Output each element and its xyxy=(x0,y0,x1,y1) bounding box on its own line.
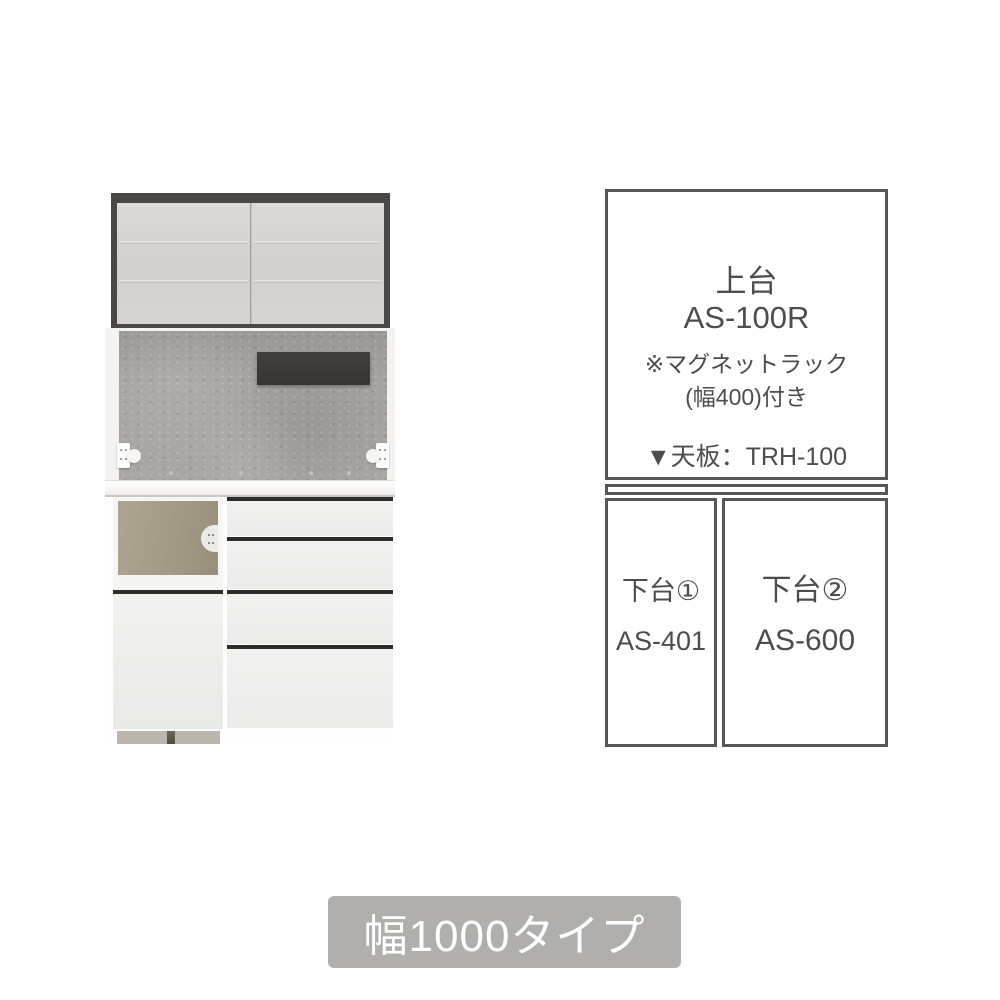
lower-door xyxy=(113,594,223,729)
shelf-line xyxy=(119,280,248,283)
lower-unit-2-model: AS-600 xyxy=(755,623,855,659)
top-board-bar xyxy=(605,484,888,495)
upper-unit-spec-box: 上台 AS-100R ※マグネットラック (幅400)付き ▼天板：TRH-10… xyxy=(605,189,888,480)
lower-unit-2-name: 下台② xyxy=(762,573,849,609)
lower-unit-1-name: 下台① xyxy=(622,573,700,609)
upper-unit-note-line2: (幅400)付き xyxy=(608,381,885,414)
drawer-1 xyxy=(227,501,393,537)
lower-cabinet xyxy=(105,497,395,745)
sliding-door-right xyxy=(251,203,385,324)
kickplate xyxy=(117,731,220,744)
sliding-doors xyxy=(117,203,384,324)
upper-unit-title: 上台 AS-100R xyxy=(608,264,885,336)
upper-unit-model: AS-100R xyxy=(608,300,885,336)
product-photo xyxy=(105,193,395,745)
lower-left-column xyxy=(113,497,223,729)
sliding-door-left xyxy=(117,203,251,324)
appliance-niche xyxy=(113,497,223,590)
drawer-3 xyxy=(227,594,393,645)
screw-dot xyxy=(239,471,243,475)
screw-dot xyxy=(169,471,173,475)
lower-unit-2-spec-box: 下台② AS-600 xyxy=(722,498,888,747)
shelf-line xyxy=(254,241,383,244)
lower-unit-1-model: AS-401 xyxy=(616,623,706,659)
upper-unit-note-line1: ※マグネットラック xyxy=(608,348,885,381)
countertop xyxy=(105,480,395,497)
upper-cabinet xyxy=(111,193,390,328)
top-board-note: ▼天板：TRH-100 xyxy=(608,437,885,473)
drawer-2 xyxy=(227,541,393,590)
screw-dot xyxy=(347,471,351,475)
hook-right xyxy=(366,449,380,463)
page: 上台 AS-100R ※マグネットラック (幅400)付き ▼天板：TRH-10… xyxy=(0,0,1000,1000)
upper-unit-name: 上台 xyxy=(608,264,885,300)
magnet-rack xyxy=(257,352,370,385)
counter-back-section xyxy=(105,328,395,480)
screw-dot xyxy=(309,471,313,475)
drawer-stack xyxy=(227,497,393,729)
width-type-badge: 幅1000タイプ xyxy=(328,896,681,968)
width-type-label: 幅1000タイプ xyxy=(364,900,646,964)
appliance-niche-interior xyxy=(118,501,218,575)
drawer-4 xyxy=(227,649,393,729)
shelf-line xyxy=(119,241,248,244)
upper-unit-note: ※マグネットラック (幅400)付き xyxy=(608,348,885,414)
shelf-line xyxy=(254,280,383,283)
hook-left xyxy=(127,449,141,463)
lower-unit-1-spec-box: 下台① AS-401 xyxy=(605,498,717,747)
niche-power-outlet xyxy=(201,525,218,552)
kickplate-slot xyxy=(167,731,175,744)
